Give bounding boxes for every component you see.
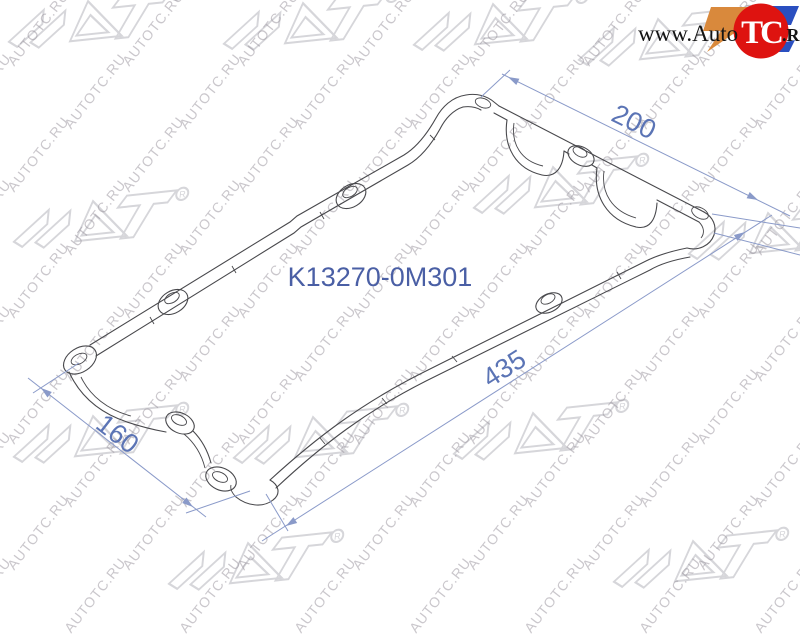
logo-prefix-text: www.Auto	[638, 21, 738, 46]
product-image-page: { "part_number": "K13270-0M301", "dimens…	[0, 0, 800, 600]
dimension-200-label: 200	[607, 99, 661, 146]
site-logo: www.Auto TC .RU	[635, 0, 800, 62]
dimension-lines	[28, 70, 800, 541]
dimension-160-label: 160	[91, 408, 145, 459]
gasket-outline	[58, 94, 715, 505]
part-number-label: K13270-0M301	[230, 262, 530, 293]
logo-suffix-text: .RU	[782, 25, 800, 45]
gasket-technical-drawing: 200 435 160	[0, 0, 800, 600]
logo-badge-text: TC	[741, 15, 782, 51]
